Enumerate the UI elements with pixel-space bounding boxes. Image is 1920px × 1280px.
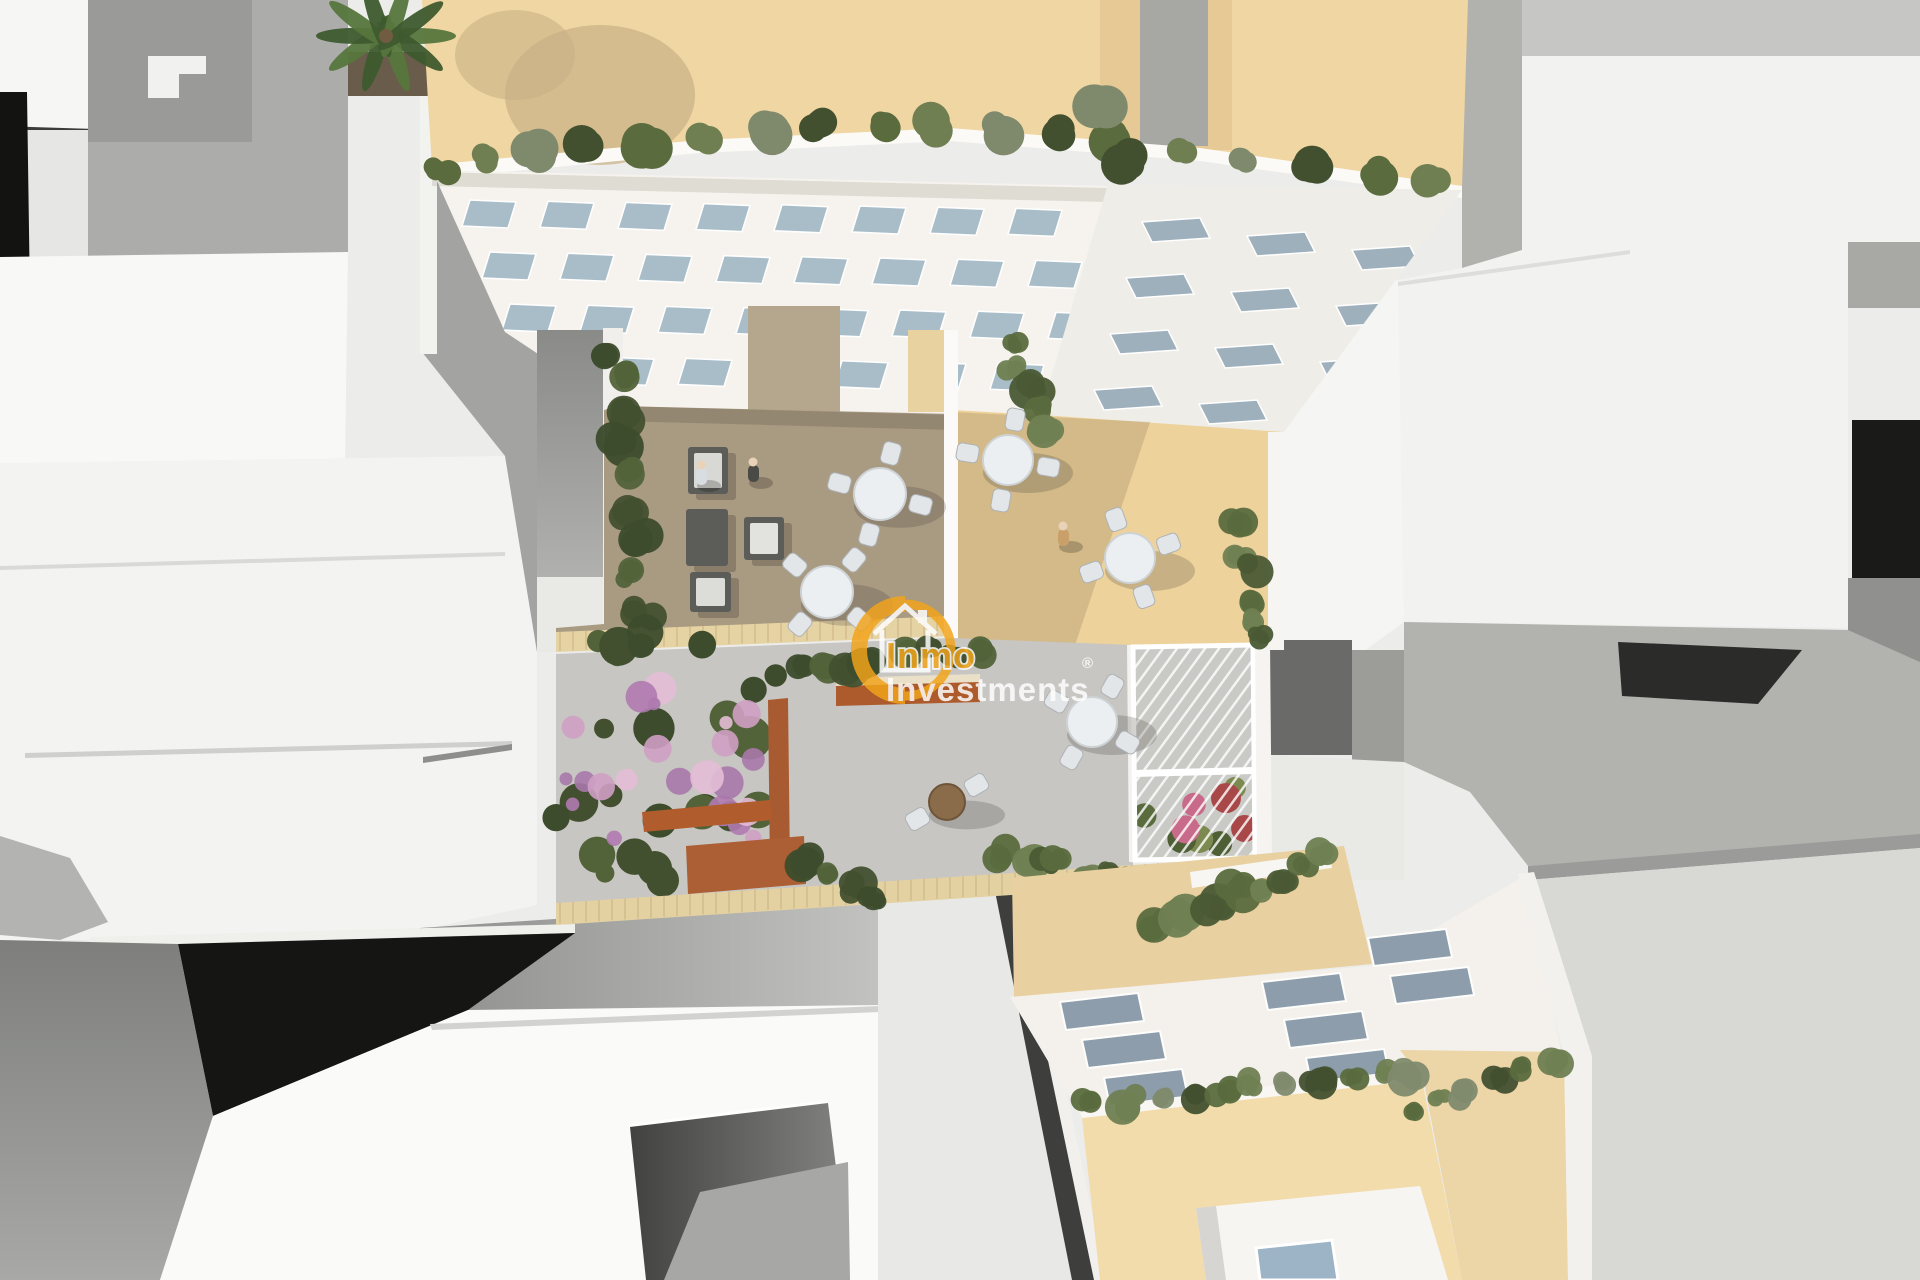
- bush: [1243, 608, 1261, 626]
- bush: [1016, 369, 1044, 397]
- bush: [1315, 842, 1338, 865]
- chair: [955, 442, 980, 464]
- bush: [1002, 334, 1019, 351]
- bush: [614, 360, 639, 385]
- gray-recess: [1352, 650, 1404, 762]
- window: [872, 258, 926, 286]
- dark-recess: [1267, 640, 1352, 755]
- bush: [610, 397, 635, 422]
- bush: [1040, 418, 1064, 442]
- bush: [1248, 627, 1262, 641]
- watermark-line1: Inmo: [886, 635, 976, 676]
- flower-cluster: [644, 735, 672, 763]
- cushion: [696, 578, 725, 606]
- bush: [750, 111, 791, 152]
- bush: [862, 887, 885, 910]
- window: [950, 259, 1004, 287]
- chair: [1036, 456, 1061, 478]
- white-roof-left-field: [0, 456, 537, 940]
- bush: [563, 125, 601, 163]
- window: [1199, 400, 1267, 424]
- garden-foliage: [646, 864, 679, 897]
- garden-foliage: [616, 838, 652, 874]
- bush: [1044, 120, 1075, 151]
- bush: [1218, 508, 1244, 534]
- bush: [595, 343, 620, 368]
- far-right-dark-gap: [1852, 420, 1920, 578]
- bush: [912, 102, 949, 139]
- bush: [436, 160, 461, 185]
- flower-cluster: [666, 768, 693, 795]
- garden-foliage: [688, 631, 716, 659]
- window: [716, 256, 770, 284]
- window: [1142, 218, 1210, 242]
- facade-notch-1: [748, 306, 840, 412]
- flower-cluster: [588, 773, 615, 800]
- render-canvas: Inmo Investments ®: [0, 0, 1920, 1280]
- bush: [1078, 87, 1113, 122]
- bush: [1481, 1066, 1505, 1090]
- window: [1028, 260, 1082, 288]
- flower-cluster: [626, 681, 658, 713]
- bush: [628, 518, 663, 553]
- bush: [617, 459, 640, 482]
- flower-cluster: [562, 716, 585, 739]
- garden-foliage: [542, 804, 569, 831]
- bush: [872, 114, 900, 142]
- light-wall: [26, 130, 88, 257]
- bush: [785, 849, 818, 882]
- flower-cluster: [719, 716, 732, 729]
- scene-svg: Inmo Investments ®: [0, 0, 1920, 1280]
- flower-cluster: [559, 772, 572, 785]
- bush: [1360, 163, 1384, 187]
- bush: [1312, 1066, 1337, 1091]
- bush: [1433, 1089, 1445, 1101]
- bush: [1190, 893, 1223, 926]
- white-roof-topleft: [0, 252, 348, 468]
- person-head: [749, 458, 758, 467]
- window: [774, 205, 828, 233]
- terrace-parapet-right: [1268, 432, 1284, 650]
- bush: [1236, 1074, 1257, 1095]
- bush: [1387, 1062, 1421, 1096]
- window: [618, 202, 672, 230]
- bush: [1514, 1056, 1531, 1073]
- registered-mark: ®: [1082, 655, 1093, 672]
- wood-table: [929, 784, 965, 820]
- flower-cluster: [712, 730, 739, 757]
- window: [930, 207, 984, 235]
- bush: [1448, 1087, 1472, 1111]
- bush: [1040, 845, 1066, 871]
- window: [1247, 232, 1315, 256]
- bush: [609, 428, 636, 455]
- window: [678, 358, 732, 386]
- bush: [1406, 1103, 1424, 1121]
- window: [462, 200, 516, 228]
- bush: [694, 126, 723, 155]
- bush: [472, 143, 493, 164]
- palm-trunk: [379, 29, 393, 43]
- window: [540, 201, 594, 229]
- round-table: [854, 468, 906, 520]
- chair: [1004, 407, 1026, 432]
- flower-cluster: [566, 798, 579, 811]
- window: [1008, 208, 1062, 236]
- person: [748, 465, 759, 482]
- flower-cluster: [742, 748, 765, 771]
- window: [482, 252, 536, 280]
- window: [658, 306, 712, 334]
- garden-foliage: [764, 664, 786, 686]
- bush: [1083, 1092, 1100, 1109]
- bush: [1113, 138, 1148, 173]
- window: [1231, 288, 1299, 312]
- bush: [1105, 1089, 1140, 1124]
- bush: [818, 867, 836, 885]
- bush: [522, 139, 556, 173]
- round-table: [983, 435, 1033, 485]
- cushion: [750, 523, 778, 554]
- flower-cluster: [616, 769, 638, 791]
- bush: [631, 127, 673, 169]
- flower-cluster: [733, 700, 761, 728]
- garden-foliage: [741, 677, 767, 703]
- chair: [990, 488, 1012, 513]
- window: [638, 254, 692, 282]
- person: [696, 468, 707, 485]
- garden-foliage: [596, 864, 615, 883]
- round-table: [1105, 533, 1155, 583]
- window: [1215, 344, 1283, 368]
- roof-structure-wall: [1140, 0, 1208, 146]
- bush: [618, 557, 644, 583]
- bush: [1175, 141, 1197, 163]
- bush: [987, 117, 1024, 154]
- terrace-divider-wall: [944, 330, 958, 648]
- garden-foliage: [594, 719, 614, 739]
- round-table: [801, 566, 853, 618]
- bush: [1274, 1074, 1296, 1096]
- window: [696, 204, 750, 232]
- gray-strip-topright: [1522, 0, 1920, 56]
- person-head: [1059, 522, 1068, 531]
- watermark-line2: Investments: [886, 671, 1090, 708]
- window: [794, 257, 848, 285]
- bush: [982, 844, 1011, 873]
- person: [1058, 529, 1069, 546]
- window: [502, 304, 556, 332]
- palm-shadow-2: [455, 10, 575, 100]
- window: [834, 361, 888, 389]
- unit-window: [1256, 1240, 1338, 1280]
- bush: [1159, 1087, 1173, 1101]
- bush: [1239, 553, 1258, 572]
- window: [1110, 330, 1178, 354]
- flower-cluster: [607, 831, 622, 846]
- bush: [806, 110, 834, 138]
- person-head: [697, 461, 706, 470]
- window: [560, 253, 614, 281]
- pergola-right-wall: [1255, 644, 1272, 860]
- window: [1094, 386, 1162, 410]
- bush: [1414, 167, 1439, 192]
- bush: [1250, 880, 1269, 899]
- window: [852, 206, 906, 234]
- bush: [1236, 152, 1257, 173]
- bush: [1185, 1084, 1206, 1105]
- bush: [1545, 1049, 1574, 1078]
- bottom-left-buildings: [0, 878, 1106, 1280]
- flower-cluster: [690, 760, 724, 794]
- bush: [1293, 146, 1330, 183]
- window: [1126, 274, 1194, 298]
- bush: [1346, 1067, 1369, 1090]
- far-right-gray-roof: [1848, 242, 1920, 308]
- bush: [627, 614, 663, 650]
- lounge-cube: [686, 509, 728, 566]
